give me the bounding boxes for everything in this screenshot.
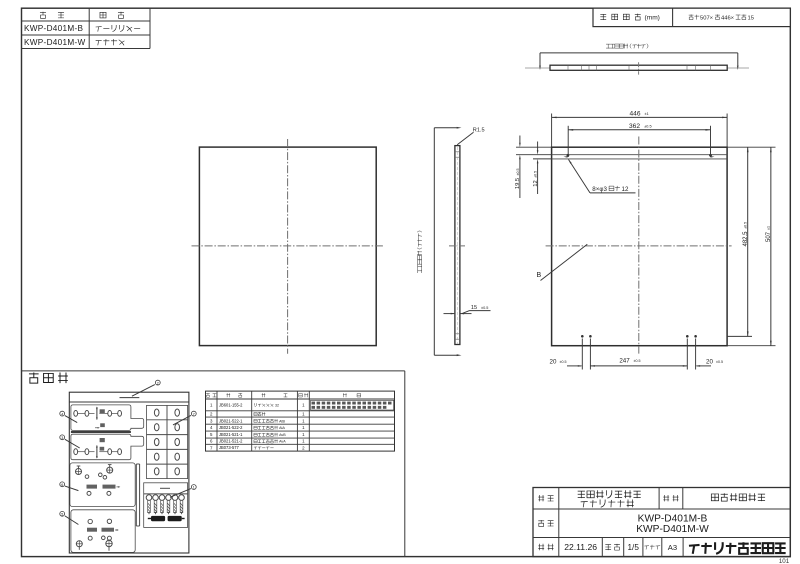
svg-text:±0.5: ±0.5 bbox=[560, 360, 567, 364]
svg-text:12: 12 bbox=[533, 180, 539, 186]
svg-text:±0.5: ±0.5 bbox=[533, 171, 537, 178]
svg-text:±0.5: ±0.5 bbox=[481, 306, 488, 310]
svg-text:±1: ±1 bbox=[767, 226, 771, 230]
svg-text:6: 6 bbox=[61, 483, 63, 487]
svg-text:22.11.26: 22.11.26 bbox=[564, 542, 597, 552]
svg-text:±0.5: ±0.5 bbox=[716, 360, 723, 364]
svg-text:7: 7 bbox=[193, 412, 195, 416]
svg-text:4: 4 bbox=[61, 412, 63, 416]
svg-text:±0.5: ±0.5 bbox=[644, 124, 651, 128]
svg-text:19.5: 19.5 bbox=[515, 178, 521, 189]
svg-text:8×φ: 8×φ bbox=[592, 186, 603, 193]
svg-text:12: 12 bbox=[622, 186, 629, 193]
svg-text:362: 362 bbox=[629, 123, 640, 130]
svg-text:446: 446 bbox=[629, 110, 640, 117]
svg-text:3: 3 bbox=[604, 186, 608, 193]
svg-text:JB021-522-2: JB021-522-2 bbox=[219, 425, 243, 430]
svg-text:20: 20 bbox=[706, 359, 713, 366]
svg-text:5: 5 bbox=[61, 513, 63, 517]
svg-text:1: 1 bbox=[193, 486, 195, 490]
svg-text:JB021-521-1: JB021-521-1 bbox=[219, 432, 243, 437]
svg-text:AtA: AtA bbox=[279, 426, 285, 430]
svg-text:507: 507 bbox=[766, 231, 772, 242]
svg-text:A3: A3 bbox=[668, 543, 677, 552]
svg-text:±0.5: ±0.5 bbox=[634, 359, 641, 363]
svg-text:482.5: 482.5 bbox=[743, 231, 749, 247]
svg-text:KWP-D401M-B: KWP-D401M-B bbox=[24, 24, 83, 33]
svg-text:±0.5: ±0.5 bbox=[516, 169, 520, 176]
svg-text:247: 247 bbox=[619, 357, 630, 364]
svg-text:±0.5: ±0.5 bbox=[744, 222, 748, 229]
svg-text:AtB: AtB bbox=[279, 419, 285, 423]
svg-text:3: 3 bbox=[61, 436, 63, 440]
svg-text:507×: 507× bbox=[700, 15, 713, 21]
svg-text:15: 15 bbox=[748, 15, 754, 21]
svg-text:JB021-521-2: JB021-521-2 bbox=[219, 439, 243, 444]
svg-text:JB021-522-1: JB021-522-1 bbox=[219, 418, 243, 423]
svg-text:32: 32 bbox=[275, 403, 279, 407]
svg-text:KWP-D401M-B: KWP-D401M-B bbox=[638, 514, 708, 525]
svg-text:B: B bbox=[537, 272, 542, 279]
svg-text:AvA: AvA bbox=[279, 440, 286, 444]
svg-text:446×: 446× bbox=[721, 15, 734, 21]
svg-text:AvB: AvB bbox=[279, 433, 286, 437]
svg-text:±1: ±1 bbox=[645, 112, 649, 116]
svg-text:KWP-D401M-W: KWP-D401M-W bbox=[636, 524, 709, 535]
svg-text:2: 2 bbox=[157, 381, 159, 385]
svg-text:KWP-D401M-W: KWP-D401M-W bbox=[24, 38, 86, 47]
svg-text:JB601-155-2: JB601-155-2 bbox=[219, 402, 243, 407]
svg-text:R1.5: R1.5 bbox=[473, 127, 485, 133]
svg-text:JB073-577: JB073-577 bbox=[219, 445, 240, 450]
svg-text:(mm): (mm) bbox=[645, 15, 660, 22]
svg-text:101: 101 bbox=[779, 558, 790, 564]
svg-text:20: 20 bbox=[550, 359, 557, 366]
svg-text:1/5: 1/5 bbox=[628, 543, 640, 552]
